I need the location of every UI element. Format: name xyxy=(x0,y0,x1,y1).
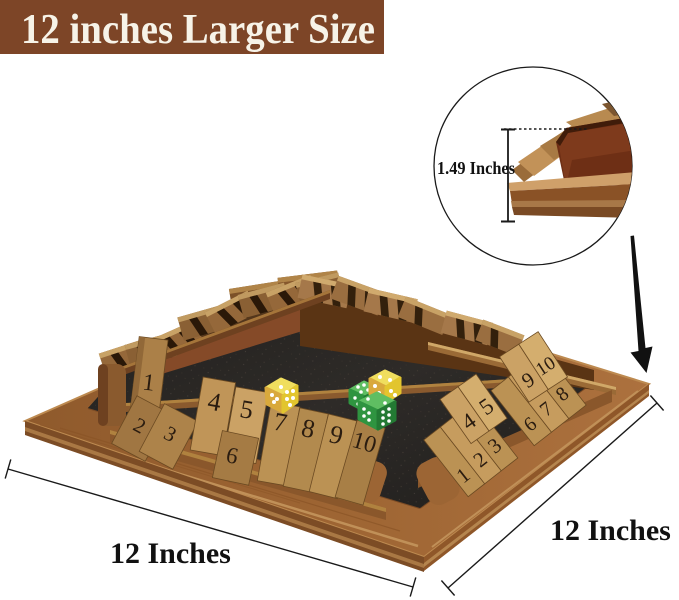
svg-text:12 Inches: 12 Inches xyxy=(550,514,671,547)
svg-text:1.49 Inches: 1.49 Inches xyxy=(437,158,515,178)
svg-text:12 inches Larger Size: 12 inches Larger Size xyxy=(21,7,375,53)
svg-text:12 Inches: 12 Inches xyxy=(110,537,231,570)
